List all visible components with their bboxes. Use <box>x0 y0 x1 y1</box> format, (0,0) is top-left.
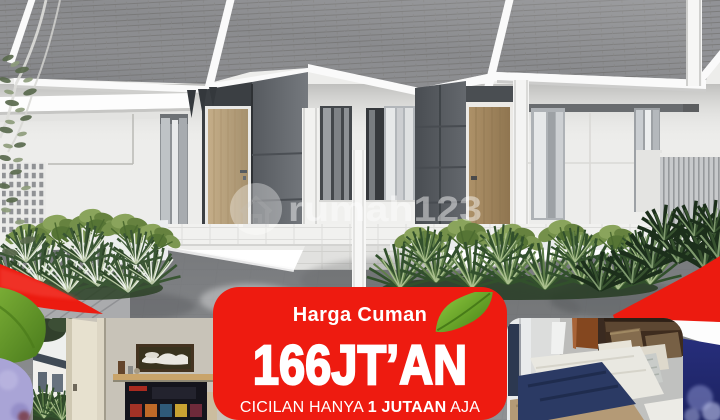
svg-text:rumah123: rumah123 <box>288 190 482 229</box>
